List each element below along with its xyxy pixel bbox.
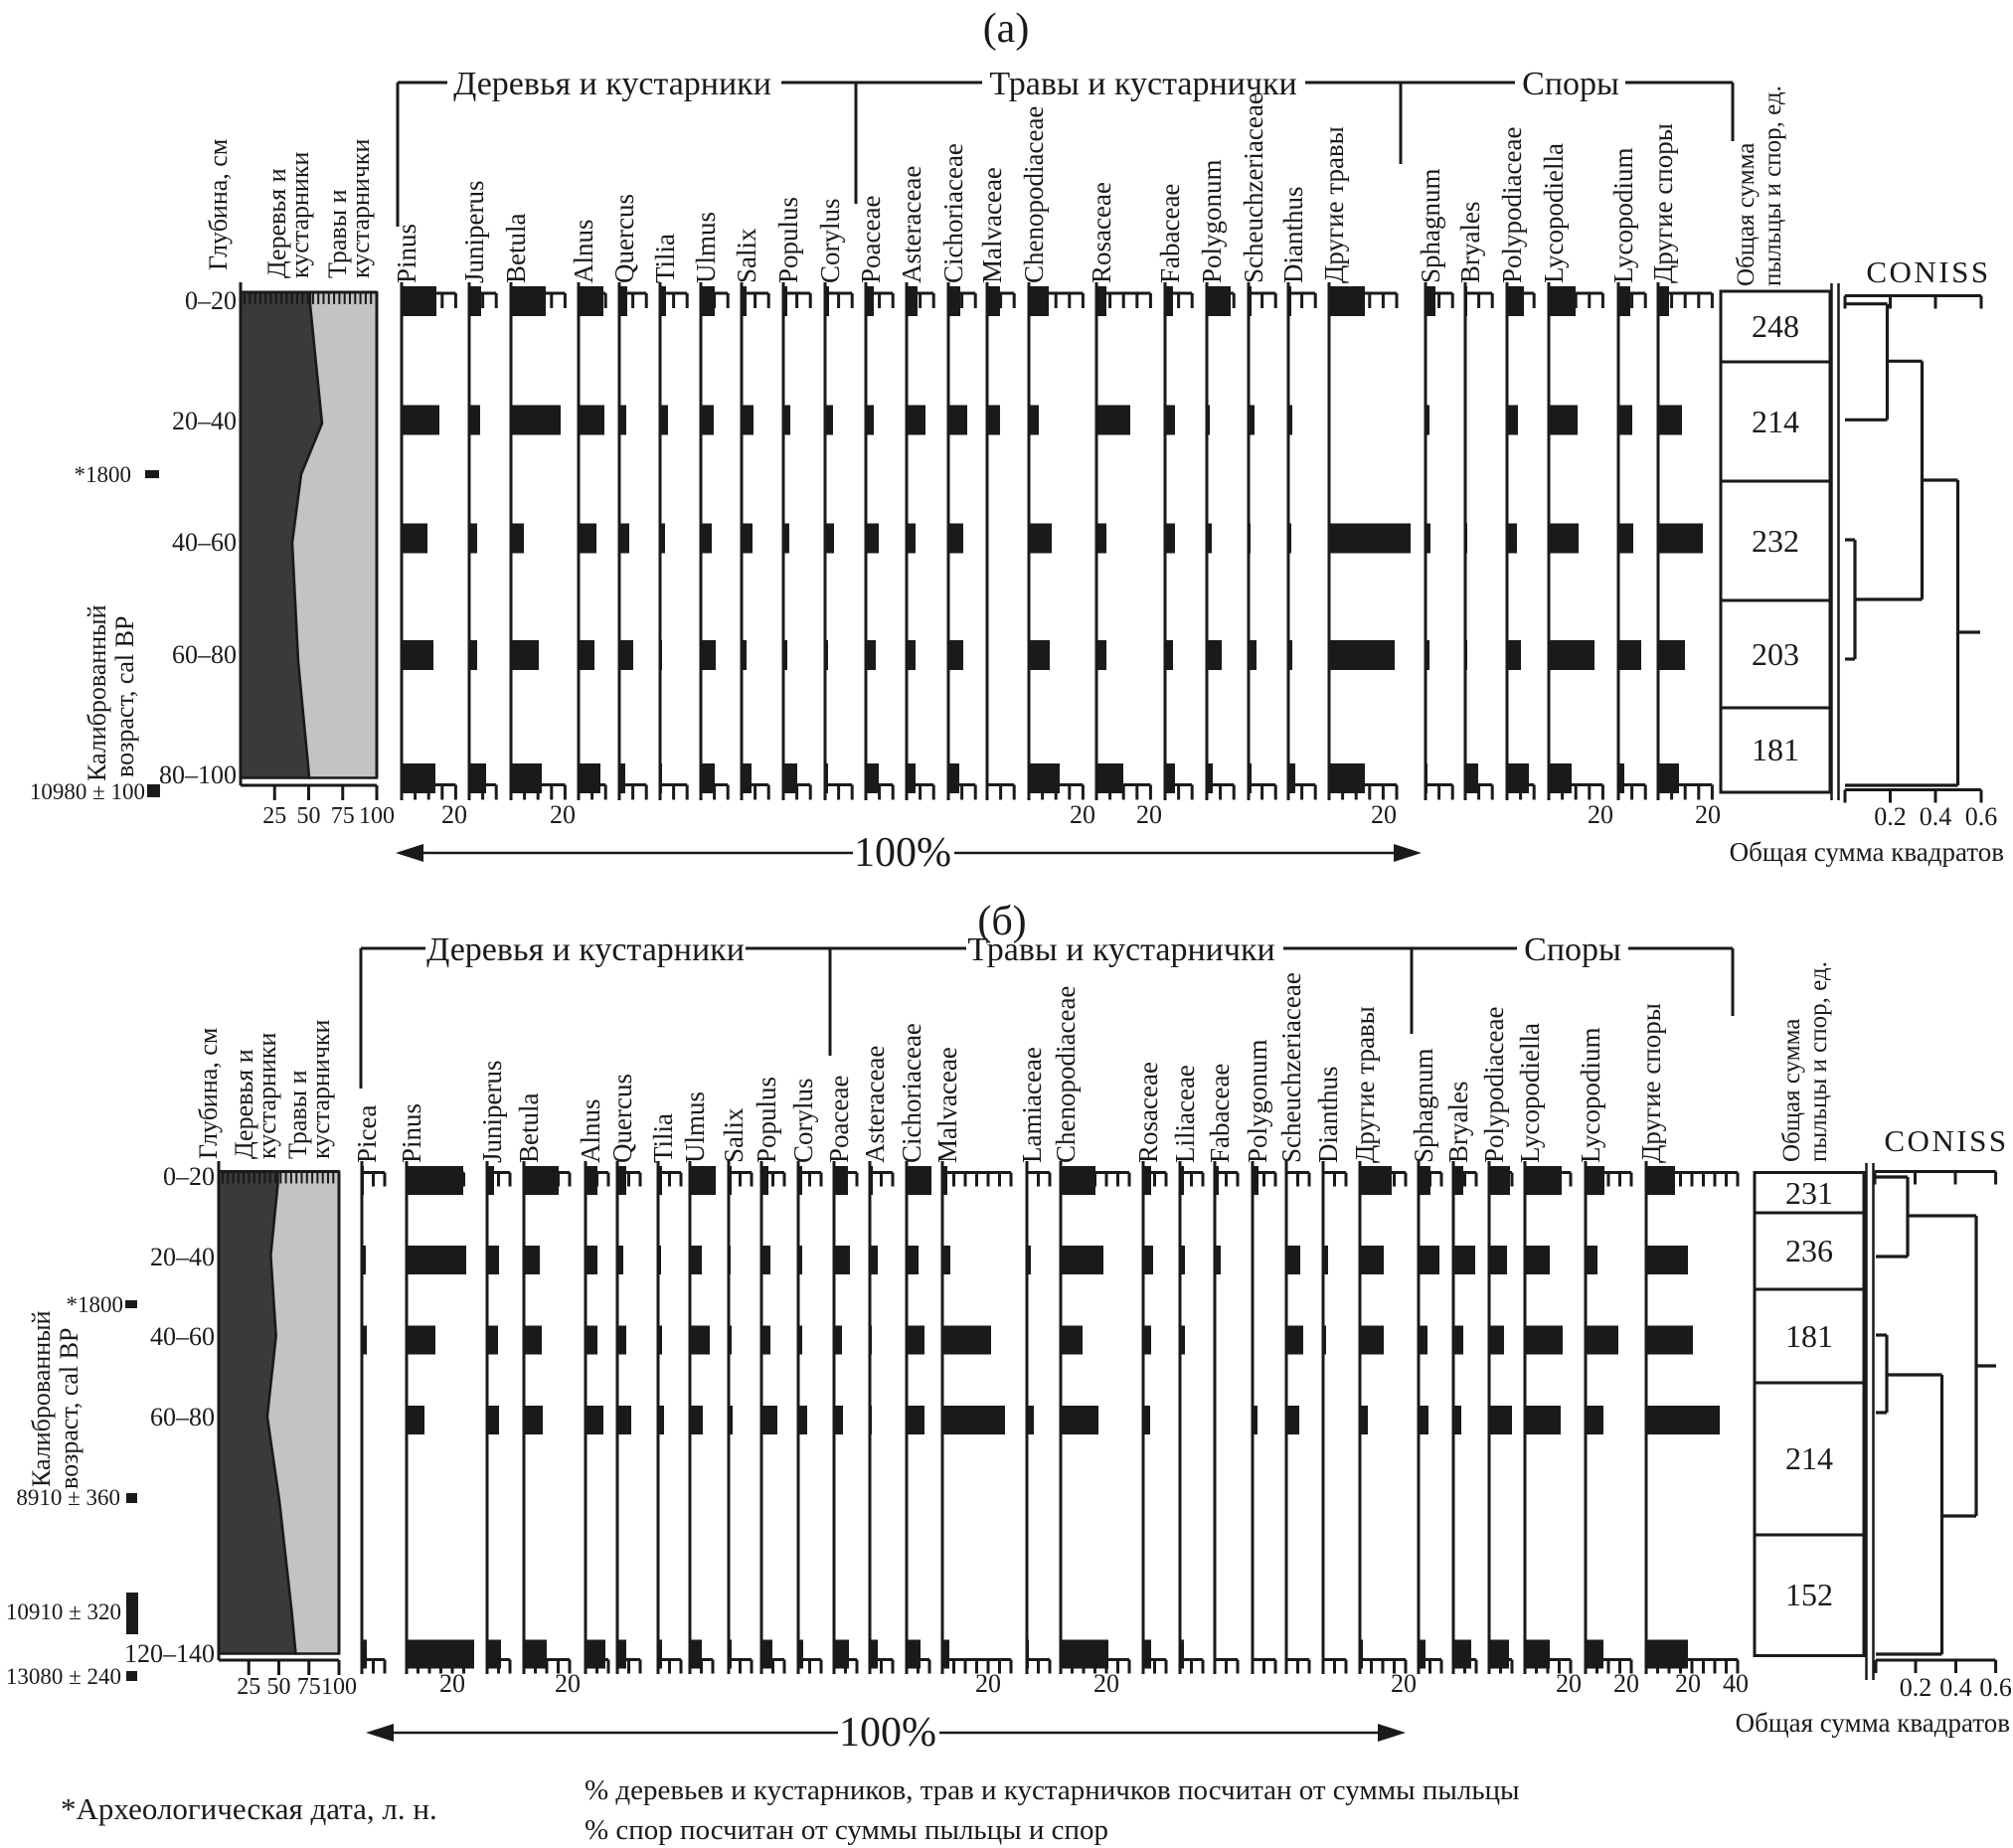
svg-text:20–40: 20–40 <box>150 1243 215 1271</box>
svg-text:152: 152 <box>1785 1577 1833 1612</box>
svg-text:*1800: *1800 <box>75 462 132 487</box>
svg-text:кустарники: кустарники <box>252 1033 281 1159</box>
svg-text:231: 231 <box>1785 1175 1833 1211</box>
svg-text:Деревья и кустарники: Деревья и кустарники <box>426 931 745 968</box>
svg-text:Rosaceae: Rosaceae <box>1087 182 1116 283</box>
svg-text:Quercus: Quercus <box>607 1074 637 1163</box>
svg-text:кустарнички: кустарнички <box>346 138 375 278</box>
svg-text:возраст, cal BP: возраст, cal BP <box>55 1328 84 1489</box>
svg-text:20: 20 <box>1588 800 1613 829</box>
svg-text:0.4: 0.4 <box>1920 802 1952 831</box>
svg-text:20–40: 20–40 <box>172 407 237 435</box>
svg-text:Ulmus: Ulmus <box>691 212 721 283</box>
svg-text:Scheuchzeriaceae: Scheuchzeriaceae <box>1276 972 1306 1163</box>
svg-text:Другие споры: Другие споры <box>1648 123 1678 283</box>
svg-text:20: 20 <box>1391 1669 1417 1698</box>
svg-text:0.4: 0.4 <box>1939 1673 1972 1702</box>
svg-text:Polypodiaceae: Polypodiaceae <box>1497 127 1527 283</box>
svg-text:Sphagnum: Sphagnum <box>1409 1048 1438 1163</box>
svg-text:Lycopodiella: Lycopodiella <box>1515 1023 1545 1163</box>
svg-text:20: 20 <box>1070 800 1095 829</box>
svg-text:Общая сумма: Общая сумма <box>1733 143 1760 286</box>
svg-text:Asteraceae: Asteraceae <box>897 166 926 283</box>
svg-text:20: 20 <box>1675 1669 1701 1698</box>
svg-text:кустарники: кустарники <box>285 152 314 278</box>
svg-text:20: 20 <box>1695 800 1721 829</box>
svg-text:CONISS: CONISS <box>1866 254 1990 289</box>
svg-text:214: 214 <box>1785 1440 1833 1476</box>
svg-text:Pinus: Pinus <box>392 224 421 283</box>
svg-text:Калиброванный: Калиброванный <box>27 1310 56 1487</box>
svg-text:40: 40 <box>1723 1669 1749 1698</box>
svg-text:Другие травы: Другие травы <box>1319 126 1349 283</box>
svg-text:Salix: Salix <box>719 1107 749 1163</box>
svg-text:0.2: 0.2 <box>1874 802 1907 831</box>
svg-text:13080 ± 240: 13080 ± 240 <box>6 1664 121 1689</box>
svg-text:% деревьев и кустарников, трав: % деревьев и кустарников, трав и кустарн… <box>585 1774 1520 1806</box>
svg-text:Picea: Picea <box>352 1105 382 1163</box>
svg-text:Juniperus: Juniperus <box>477 1061 507 1164</box>
svg-text:0.2: 0.2 <box>1900 1673 1932 1702</box>
svg-text:Травы и кустарнички: Травы и кустарнички <box>967 931 1274 968</box>
svg-text:20: 20 <box>441 800 467 829</box>
svg-text:20: 20 <box>439 1669 465 1698</box>
svg-text:Dianthus: Dianthus <box>1313 1067 1343 1164</box>
svg-text:Juniperus: Juniperus <box>459 181 489 284</box>
svg-text:20: 20 <box>1136 800 1162 829</box>
svg-text:Tilia: Tilia <box>648 1113 678 1163</box>
svg-text:Poaceae: Poaceae <box>824 1076 854 1163</box>
svg-text:Chenopodiaceae: Chenopodiaceae <box>1019 106 1049 283</box>
svg-text:пыльцы и спор, ед.: пыльцы и спор, ед. <box>1805 961 1832 1162</box>
svg-text:Глубина, см: Глубина, см <box>194 1028 223 1159</box>
svg-text:(а): (а) <box>983 6 1030 52</box>
svg-text:Tilia: Tilia <box>650 234 680 283</box>
svg-text:Alnus: Alnus <box>569 219 598 283</box>
svg-text:25: 25 <box>237 1674 260 1700</box>
svg-text:100: 100 <box>359 803 395 829</box>
svg-text:Dianthus: Dianthus <box>1278 187 1308 284</box>
svg-text:% спор посчитан от суммы пыльц: % спор посчитан от суммы пыльцы и спор <box>585 1814 1108 1846</box>
svg-text:Asteraceae: Asteraceae <box>860 1046 890 1163</box>
svg-text:Другие травы: Другие травы <box>1350 1006 1380 1163</box>
svg-text:Калиброванный: Калиброванный <box>83 604 111 781</box>
svg-text:Lamiaceae: Lamiaceae <box>1017 1047 1047 1163</box>
svg-text:50: 50 <box>267 1674 291 1700</box>
svg-text:Общая сумма квадратов: Общая сумма квадратов <box>1736 1708 2010 1738</box>
svg-text:Bryales: Bryales <box>1455 202 1485 283</box>
svg-text:Betula: Betula <box>501 214 531 283</box>
svg-text:20: 20 <box>1093 1669 1119 1698</box>
svg-text:Polypodiaceae: Polypodiaceae <box>1479 1007 1509 1163</box>
svg-text:20: 20 <box>1371 800 1397 829</box>
svg-text:Quercus: Quercus <box>609 194 639 283</box>
svg-text:Fabaceae: Fabaceae <box>1155 184 1185 283</box>
svg-text:Rosaceae: Rosaceae <box>1133 1062 1163 1163</box>
svg-text:пыльцы и спор, ед.: пыльцы и спор, ед. <box>1760 85 1786 286</box>
svg-text:50: 50 <box>297 803 321 829</box>
svg-text:Populus: Populus <box>752 1077 781 1163</box>
svg-text:Salix: Salix <box>732 228 761 283</box>
svg-text:0.6: 0.6 <box>1965 802 1998 831</box>
svg-text:120–140: 120–140 <box>124 1639 215 1668</box>
svg-text:236: 236 <box>1785 1233 1833 1268</box>
svg-text:Alnus: Alnus <box>576 1098 605 1163</box>
svg-text:*Археологическая дата, л. н.: *Археологическая дата, л. н. <box>61 1791 437 1826</box>
svg-text:Sphagnum: Sphagnum <box>1416 168 1445 283</box>
svg-text:20: 20 <box>550 800 576 829</box>
svg-text:Pinus: Pinus <box>397 1103 426 1163</box>
svg-text:60–80: 60–80 <box>150 1403 215 1431</box>
svg-text:40–60: 40–60 <box>172 528 237 557</box>
svg-text:Lycopodium: Lycopodium <box>1608 148 1638 284</box>
svg-text:25: 25 <box>262 803 286 829</box>
svg-text:Populus: Populus <box>773 197 803 283</box>
svg-text:кустарнички: кустарнички <box>306 1019 335 1159</box>
svg-text:CONISS: CONISS <box>1884 1123 2008 1158</box>
svg-text:80–100: 80–100 <box>159 760 237 789</box>
svg-text:203: 203 <box>1752 636 1799 672</box>
svg-text:Scheuchzeriaceae: Scheuchzeriaceae <box>1239 92 1268 283</box>
svg-text:100: 100 <box>321 1674 357 1700</box>
svg-text:75: 75 <box>331 803 355 829</box>
svg-text:181: 181 <box>1752 732 1799 767</box>
svg-text:Lycopodiella: Lycopodiella <box>1539 143 1569 283</box>
svg-text:Cichoriaceae: Cichoriaceae <box>897 1023 926 1163</box>
svg-text:10980 ± 100: 10980 ± 100 <box>30 779 145 804</box>
svg-text:Poaceae: Poaceae <box>856 196 886 283</box>
svg-text:Bryales: Bryales <box>1443 1082 1473 1163</box>
svg-text:Fabaceae: Fabaceae <box>1205 1064 1235 1163</box>
svg-text:Другие споры: Другие споры <box>1636 1003 1666 1163</box>
svg-text:40–60: 40–60 <box>150 1322 215 1351</box>
svg-text:232: 232 <box>1752 523 1799 559</box>
svg-text:75: 75 <box>297 1674 321 1700</box>
svg-text:0–20: 0–20 <box>163 1162 215 1191</box>
svg-text:248: 248 <box>1752 308 1799 344</box>
svg-text:Споры: Споры <box>1522 66 1619 102</box>
svg-text:Betula: Betula <box>514 1093 544 1163</box>
svg-text:8910 ± 360: 8910 ± 360 <box>16 1485 120 1510</box>
svg-text:100%: 100% <box>854 830 951 876</box>
svg-text:Общая сумма: Общая сумма <box>1778 1019 1805 1162</box>
svg-text:10910 ± 320: 10910 ± 320 <box>6 1599 121 1624</box>
svg-text:Malvaceae: Malvaceae <box>977 167 1007 283</box>
svg-text:Споры: Споры <box>1524 931 1621 968</box>
svg-text:Cichoriaceae: Cichoriaceae <box>938 143 968 283</box>
svg-text:Chenopodiaceae: Chenopodiaceae <box>1051 986 1081 1163</box>
svg-text:20: 20 <box>1556 1669 1582 1698</box>
svg-text:Corylus: Corylus <box>815 198 845 283</box>
svg-text:20: 20 <box>555 1669 581 1698</box>
svg-text:*1800: *1800 <box>67 1292 124 1317</box>
svg-text:214: 214 <box>1752 404 1799 439</box>
svg-text:Глубина, см: Глубина, см <box>204 139 233 270</box>
svg-text:20: 20 <box>975 1669 1001 1698</box>
svg-text:Malvaceae: Malvaceae <box>932 1047 962 1163</box>
svg-text:Liliaceae: Liliaceae <box>1170 1065 1200 1163</box>
svg-text:Деревья и кустарники: Деревья и кустарники <box>453 66 771 102</box>
svg-text:Polygonum: Polygonum <box>1197 159 1227 283</box>
svg-text:60–80: 60–80 <box>172 640 237 669</box>
svg-text:Общая сумма квадратов: Общая сумма квадратов <box>1730 837 2004 867</box>
svg-text:0–20: 0–20 <box>185 286 237 315</box>
svg-text:Corylus: Corylus <box>788 1078 818 1163</box>
svg-text:181: 181 <box>1785 1318 1833 1354</box>
svg-text:Polygonum: Polygonum <box>1243 1039 1272 1163</box>
svg-text:20: 20 <box>1613 1669 1639 1698</box>
svg-text:возраст, cal BP: возраст, cal BP <box>110 616 139 777</box>
svg-text:Ulmus: Ulmus <box>680 1092 710 1163</box>
svg-text:Lycopodium: Lycopodium <box>1576 1028 1605 1164</box>
svg-text:100%: 100% <box>839 1710 936 1756</box>
svg-text:0.6: 0.6 <box>1979 1673 2012 1702</box>
